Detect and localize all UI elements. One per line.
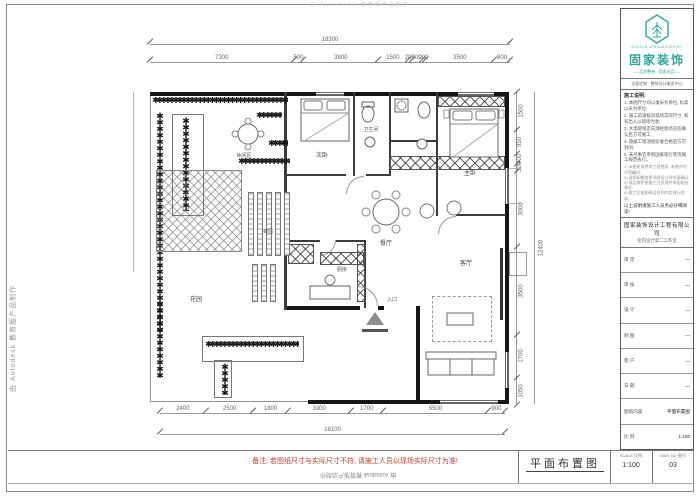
drawing-no-value: 03 [654,462,692,469]
partition [366,174,390,176]
planter-box: ✱✱✱✱✱✱✱✱✱✱✱✱✱✱✱✱✱✱✱✱✱✱✱✱✱✱✱✱✱✱✱✱✱✱✱✱ [202,336,304,362]
wall-segment [505,204,509,352]
garden-offset-line [133,92,134,272]
bathroom-fixtures-2 [394,98,434,152]
company-name: 固家装饰设计工程有限公司 [622,221,692,237]
bottom-strip-line2 [8,483,694,484]
room-label-dining: 餐厅 [380,238,392,247]
scale-value: 1:100 [612,462,650,469]
armchairs [418,200,464,222]
note-item: 5. 未尽事宜参照国家现行装饰施工规范执行。 [624,152,690,164]
veg-row [266,192,272,256]
bed-master [444,108,504,160]
dim-seg: 3000 [517,171,526,246]
plant-border: ✱✱✱✱✱✱✱✱✱✱✱✱✱✱✱✱✱✱✱✱✱✱✱✱✱✱✱✱✱✱✱✱✱✱✱✱ [238,158,290,170]
dim-seg: 3300 [288,414,351,423]
dim-seg: 7300 [150,63,294,72]
company-block: 固家装饰设计工程有限公司 室内设计第二工作室 [621,217,693,247]
bay-line [509,168,521,169]
dim-seg: 1500 [378,63,408,72]
divider [518,450,519,483]
wall-segment [308,400,440,404]
veg-row [252,264,258,302]
veg-row [257,192,263,256]
window [316,92,344,96]
dim-seg: 2400 [160,414,206,423]
wall-segment [416,306,420,404]
dim-seg: 1500 [517,92,526,130]
dim-seg: 2500 [206,414,254,423]
dim-top-total: 18300 [320,37,341,43]
wall-segment [150,92,316,96]
dim-seg: 1050 [517,378,526,404]
field-row: 比 例1:100 [621,425,693,449]
veg-row [275,192,281,256]
veg-row [248,192,254,256]
dim-seg: 3800 [303,63,378,72]
room-label-living: 客厅 [460,258,472,267]
study-desk [308,274,354,302]
window [505,352,509,388]
scale-label: SCALE 比例 [612,453,650,459]
bay-line [509,203,521,204]
dim-right-chain: 1500 950 400 300 3000 3500 1700 1050 [516,92,526,404]
autodesk-watermark-top: 由 Autodesk 教育版产品制作 [250,1,470,8]
planter-plants: ✱✱✱✱✱✱✱✱✱✱✱✱✱✱✱✱✱✱✱✱✱✱✱✱✱✱✱✱✱✱✱✱✱✱✱✱ [205,341,299,356]
entry-triangle-marker [366,312,384,325]
coffee-table [446,312,474,326]
veg-row [270,264,276,302]
plant-cluster: ✱✱✱✱✱✱✱✱✱✱✱✱✱✱✱✱✱✱✱✱✱✱✱✱✱✱✱✱✱✱✱✱✱✱✱✱ [256,112,282,124]
dim-seg: 5500 [383,414,488,423]
window [505,168,509,204]
room-label-bed2: 次卧 [316,150,328,159]
title-block: GUJIA ZHUANGSHI 固家装饰 — 品质整装 · 固家出品 — 全屋定… [620,8,694,450]
closet-cabinet [438,96,505,107]
bottom-strip-line [8,450,694,451]
partition [436,92,438,216]
bed-secondary [300,98,350,144]
drawing-no-label: DWG NO 图号 [654,453,692,459]
note-item: 2. 施工前请核对现场实际尺寸, 如有出入以现场为准; [624,113,690,125]
dim-seg: 1700 [517,335,526,378]
dim-bottom-total: 18100 [322,427,343,433]
veg-row [284,192,290,256]
field-row: 制 图— [621,324,693,349]
dining-table-set [362,188,410,236]
planter-plants: ✱✱✱✱✱✱✱✱✱✱✱✱✱✱✱✱✱✱✱✱✱✱✱✱✱✱✱✱✱✱✱✱✱✱✱✱ [216,363,229,395]
divider [652,450,653,483]
field-row: 审 核— [621,273,693,298]
room-label-veg: 菜园 [263,228,273,235]
ac-unit [509,252,527,276]
fine-print: 3) 成品保护由施工方负责并承担相应责任; [624,180,690,190]
note-item: 3. 水电管线走向须经现场交底确认后方可施工; [624,126,690,138]
dim-seg: 1800 [253,414,287,423]
note-item: 4. 隐蔽工程须经验收合格后方可封闭; [624,139,690,151]
partition [353,92,355,176]
dim-seg: 800 [494,63,510,72]
red-site-note: 备注: 若图纸尺寸与实际尺寸不符, 请施工人员以现场实际尺寸为准! [190,456,520,466]
sofa [426,352,496,378]
contact-row: 全屋定制 · 整装设计服务中心 [621,78,693,89]
field-row: 图纸内容平面布置图 [621,399,693,424]
room-label-bath: 卫生间 [363,126,378,133]
tv-panel [500,248,503,320]
brand-emblem-icon [644,14,670,44]
partition [336,240,366,242]
dim-seg: 1700 [351,414,383,423]
tall-cabinet [357,244,365,302]
dim-bottom-chain: 2400 2500 1800 3300 1700 5500 900 [160,413,505,423]
dim-top-overall: 18300 [150,44,510,53]
plant-border: ✱✱✱✱✱✱✱✱✱✱✱✱✱✱✱✱✱✱✱✱✱✱✱✱✱✱✱✱✱✱✱✱✱✱✱✱ [151,300,164,378]
note-item: 1. 本图尺寸均以毫米为单位, 标高以米为单位; [624,100,690,112]
brand-tagline: — 品质整装 · 固家出品 — [623,69,691,75]
brand-sub: GUJIA ZHUANGSHI [623,44,691,49]
dim-seg: 500 [294,63,304,72]
autodesk-watermark-left: 由 Autodesk 教育版产品制作 [8,92,18,392]
planter-box: ✱✱✱✱✱✱✱✱✱✱✱✱✱✱✱✱✱✱✱✱✱✱✱✱✱✱✱✱✱✱✱✱✱✱✱✱ [214,360,232,398]
storage-box [288,244,314,264]
notes-notice: 以上说明请施工人员务必仔细阅读! [624,203,690,215]
plant-border: ✱✱✱✱✱✱✱✱✱✱✱✱✱✱✱✱✱✱✱✱✱✱✱✱✱✱✱✱✱✱✱✱✱✱✱✱ [152,97,288,112]
fine-print: 1) 本图纸仅供本工程使用, 未经许可不得翻印; [624,164,690,174]
partition [286,174,346,176]
veg-row [261,264,267,302]
title-block-fields: 审 定— 审 核— 设 计— 制 图— 客 户— 日 期— 图纸内容平面布置图 … [621,247,693,449]
brand-logo-area: GUJIA ZHUANGSHI 固家装饰 — 品质整装 · 固家出品 — [621,9,693,78]
garden-bottom-line [150,401,310,402]
autodesk-watermark-bottom: 由 Autodesk 教育版产品制作 [268,471,448,480]
dim-seg: 3500 [425,63,494,72]
partition [286,240,320,242]
fine-print: 4) 竣工后按图纸及合同约定进行验收。 [624,190,690,200]
wall-segment [505,92,509,168]
brand-name: 固家装饰 [623,51,691,68]
dim-bottom-overall: 18100 [160,434,505,443]
wall-segment [378,306,384,310]
company-dept: 室内设计第二工作室 [622,238,692,244]
room-label-master: 主卧 [464,168,476,177]
room-label-garden: 花园 [190,294,202,303]
drawing-title: 平面布置图 [522,455,608,471]
drawing-title-underline [526,471,604,472]
dim-seg: 500 [412,63,422,72]
notes-title: 施工说明: [624,92,690,99]
field-row: 设 计— [621,298,693,323]
dim-seg: 900 [488,414,505,423]
construction-notes: 施工说明: 1. 本图尺寸均以毫米为单位, 标高以米为单位; 2. 施工前请核对… [621,89,693,217]
field-row: 审 定— [621,248,693,273]
wall-segment [286,306,360,310]
room-label-kitchen: 厨房 [337,266,347,273]
room-label-entry: 入口 [387,296,397,303]
dim-right-total: 12400 [538,240,544,257]
dim-top-chain: 7300 500 3800 1500 200 500 200 3500 800 [150,62,510,72]
entry-marker-bar [362,329,388,332]
paved-terrace [156,170,242,252]
field-row: 客 户— [621,349,693,374]
window [440,400,498,404]
plant-cluster: ✱✱✱✱✱✱✱✱✱✱✱✱✱✱✱✱✱✱✱✱✱✱✱✱✱✱✱✱✱✱✱✱✱✱✱✱ [268,140,288,150]
dim-right-overall: 12400 [534,92,543,404]
field-row: 日 期— [621,374,693,399]
wall-segment [498,400,509,404]
divider [610,450,611,483]
room-label-leisure: 休闲区 [236,152,251,159]
